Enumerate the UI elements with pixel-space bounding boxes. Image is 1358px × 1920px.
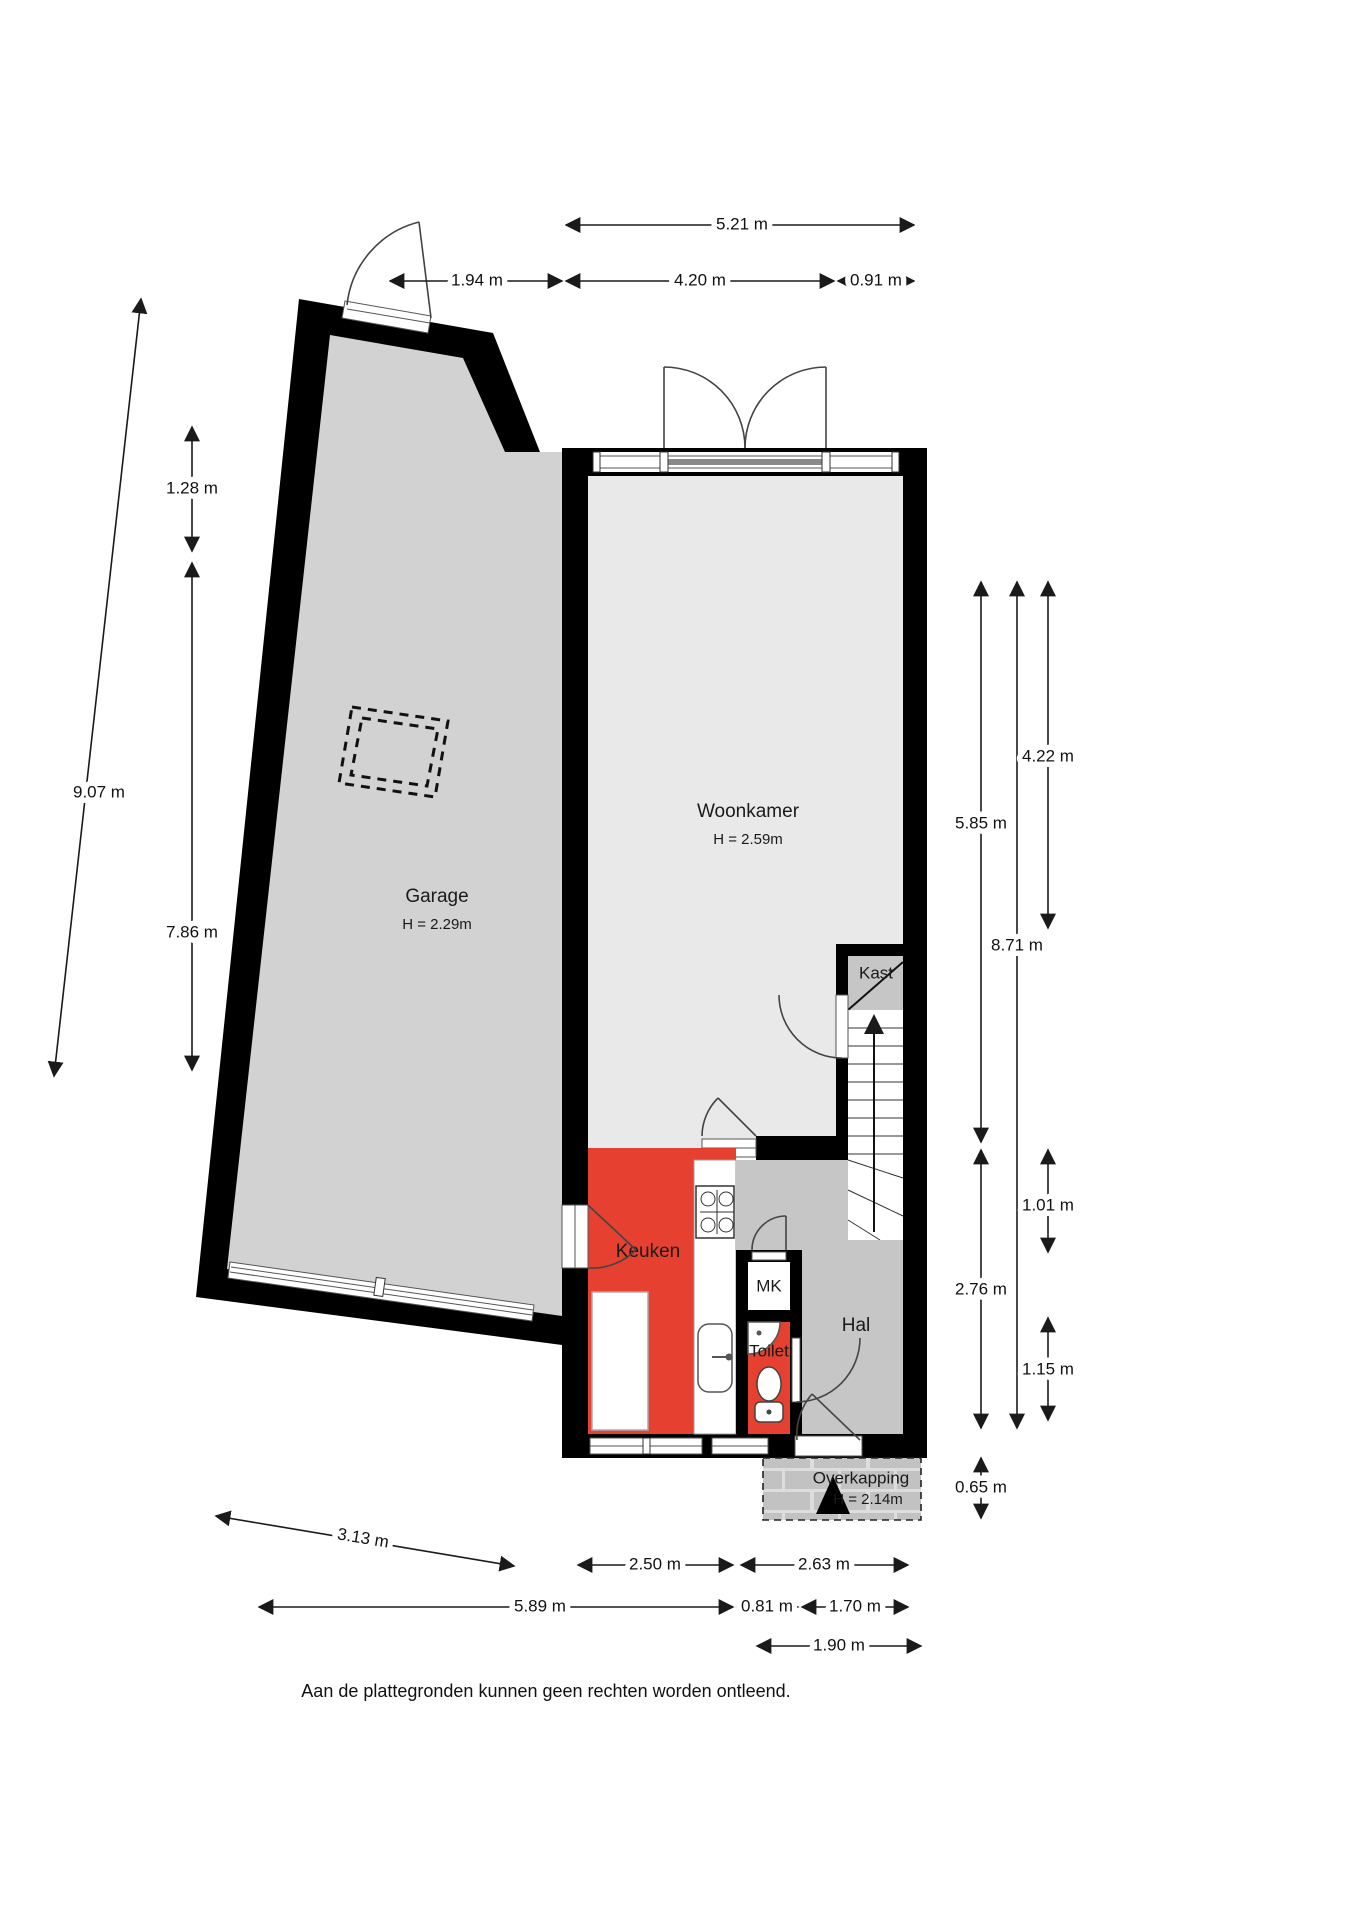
dim-left-7-86: 7.86 m	[166, 922, 218, 941]
sink-icon	[698, 1324, 733, 1392]
dim-left-9-07: 9.07 m	[73, 782, 125, 801]
dim-bottom-1-90: 1.90 m	[813, 1635, 865, 1654]
garage-door	[342, 222, 431, 333]
dim-bottom-0-81: 0.81 m	[741, 1596, 793, 1615]
french-doors	[664, 367, 826, 448]
dim-bottom-2-50: 2.50 m	[629, 1554, 681, 1573]
keuken-room: Keuken	[588, 1148, 736, 1434]
dimension-lines-top: 5.21 m 1.94 m 4.20 m 0.91 m	[390, 214, 914, 289]
toilet-label: Toilet	[749, 1341, 789, 1360]
kast-label: Kast	[859, 963, 893, 982]
keuken-cabinet	[592, 1292, 648, 1430]
french-door-right-arc	[745, 367, 826, 448]
dim-right-2-76: 2.76 m	[955, 1279, 1007, 1298]
garage-door-swing-arc	[347, 222, 419, 305]
dim-bottom-1-70: 1.70 m	[829, 1596, 881, 1615]
stairs	[848, 1010, 903, 1240]
mk-label: MK	[756, 1276, 782, 1295]
hal-label: Hal	[842, 1315, 871, 1336]
house-block: Woonkamer H = 2.59m Kast	[562, 367, 927, 1458]
dim-left-1-28: 1.28 m	[166, 478, 218, 497]
wall-left	[562, 448, 588, 1458]
toilet-icon	[755, 1367, 783, 1422]
keuken-window	[590, 1438, 702, 1454]
overkapping-height-label: H = 2.14m	[833, 1491, 903, 1508]
dim-bottom-3-13: 3.13 m	[336, 1524, 390, 1551]
garage-floor	[227, 335, 562, 1316]
woonkamer-label: Woonkamer	[697, 801, 800, 822]
dim-top-0-91: 0.91 m	[850, 270, 902, 289]
floorplan-page: Garage H = 2.29m Woonkamer H = 2.59m	[0, 0, 1358, 1920]
dim-right-8-71: 8.71 m	[991, 935, 1043, 954]
french-door-left-arc	[664, 367, 745, 448]
garage-height-label: H = 2.29m	[402, 916, 472, 933]
garage-room: Garage H = 2.29m	[196, 222, 562, 1345]
dim-top-5-21: 5.21 m	[716, 214, 768, 233]
wall-right	[903, 448, 927, 1458]
overkapping-label: Overkapping	[813, 1468, 909, 1487]
overkapping-area: Overkapping H = 2.14m	[763, 1458, 921, 1520]
woonkamer-window-band	[593, 452, 899, 472]
toilet-window	[712, 1438, 768, 1454]
floorplan-drawing: Garage H = 2.29m Woonkamer H = 2.59m	[0, 0, 1358, 1920]
dim-right-4-22: 4.22 m	[1022, 746, 1074, 765]
disclaimer-text: Aan de plattegronden kunnen geen rechten…	[301, 1681, 790, 1701]
dim-right-5-85: 5.85 m	[955, 813, 1007, 832]
stove-icon	[696, 1186, 734, 1238]
dim-bottom-2-63: 2.63 m	[798, 1554, 850, 1573]
dimension-lines-bottom: 3.13 m 2.50 m 2.63 m 5.89 m 0.81 m 1.70 …	[216, 1516, 921, 1654]
garage-label: Garage	[405, 886, 468, 907]
corner-sink-drain	[757, 1331, 762, 1336]
dim-right-1-01: 1.01 m	[1022, 1195, 1074, 1214]
woonkamer-height-label: H = 2.59m	[713, 831, 783, 848]
dimension-lines-right: 5.85 m 8.71 m 4.22 m 2.76 m 1.01 m 1.15 …	[955, 582, 1074, 1518]
dim-right-1-15: 1.15 m	[1022, 1359, 1074, 1378]
dimension-lines-left: 9.07 m 1.28 m 7.86 m	[54, 299, 218, 1076]
dim-top-4-20: 4.20 m	[674, 270, 726, 289]
dim-top-1-94: 1.94 m	[451, 270, 503, 289]
dim-bottom-5-89: 5.89 m	[514, 1596, 566, 1615]
dim-right-0-65: 0.65 m	[955, 1477, 1007, 1496]
